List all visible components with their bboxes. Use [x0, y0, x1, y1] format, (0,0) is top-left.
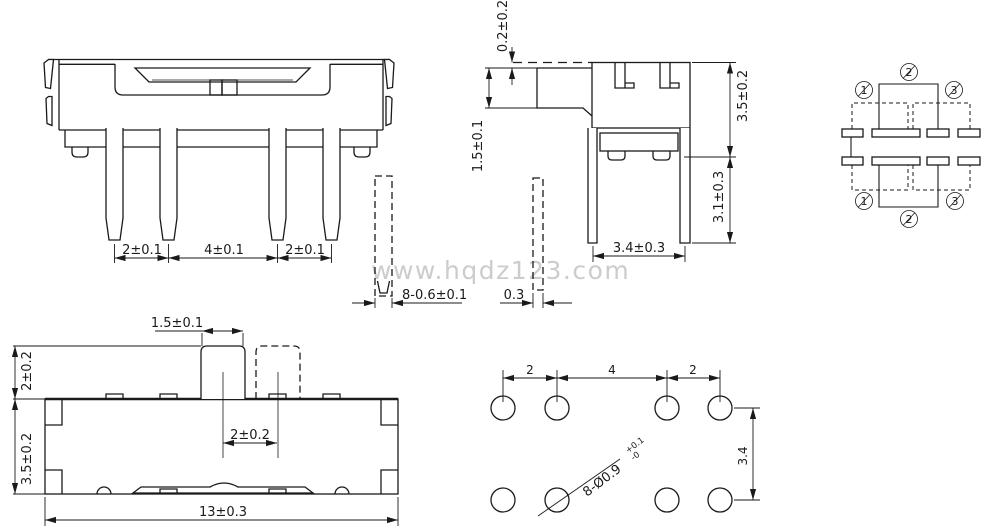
pin-section-width: 8-0.6±0.1: [352, 176, 467, 308]
front-view: 2±0.1 4±0.1 2±0.1: [44, 60, 394, 264]
schematic-terminal: [927, 157, 949, 165]
pin-number-digit: 2: [906, 66, 913, 79]
pcb-hole-spec-group: 8-Ø0.9 +0.1 -0: [577, 435, 653, 500]
pin-number-1-top: 1: [856, 82, 873, 99]
top-dim-knob-protrusion: 2±0.2: [20, 351, 35, 391]
front-dim-pitch-left: 2±0.1: [122, 243, 162, 258]
side-dim-pin-length: 3.1±0.3: [712, 171, 727, 223]
front-corner-flap-top-left: [44, 60, 54, 89]
pin-width-extension-lines: [375, 298, 392, 308]
schematic-terminal: [842, 157, 863, 165]
pcb-hole: [491, 488, 515, 512]
technical-drawing-page: www.hqdz123.com 2±0.1: [0, 0, 991, 529]
schematic-terminal: [872, 157, 920, 165]
pcb-hole: [708, 488, 732, 512]
front-pin-2: [160, 128, 177, 240]
pin-thickness-label: 0.3: [504, 288, 525, 303]
side-dim-body-height: 3.5±0.2: [736, 70, 751, 122]
top-dim-knob-extensions: [155, 331, 243, 346]
side-leg-right: [680, 128, 690, 243]
top-view: 1.5±0.1 2±0.2 3.5±0.2 2±0.2 13±0.3: [13, 316, 398, 526]
pin-section-thickness: 0.3: [500, 178, 572, 308]
pcb-dim-pitch-middle: 4: [608, 363, 616, 377]
pin-number-digit: 1: [861, 195, 868, 208]
pin-number-digit: 3: [952, 195, 959, 208]
top-dim-knob-width: 1.5±0.1: [151, 316, 203, 331]
front-pin-4: [323, 128, 340, 240]
schematic-terminal: [958, 129, 980, 137]
side-dim-knob-extension: [485, 68, 537, 108]
top-dim-body-depth: 3.5±0.2: [20, 433, 35, 485]
schematic-dashed-connections: [852, 103, 970, 190]
side-dim-knob-protrusion: 0.2±0.2: [496, 0, 511, 52]
front-pin-3: [269, 128, 286, 240]
side-body: [592, 63, 690, 129]
top-corner-notches: [45, 399, 398, 494]
schematic-terminal: [842, 129, 863, 137]
pin-thickness-extension-lines: [533, 293, 543, 308]
front-dim-pitch-middle: 4±0.1: [204, 243, 244, 258]
pin-number-3-top: 3: [946, 82, 963, 99]
side-knob: [537, 68, 592, 116]
pcb-dim-pitch-left: 2: [526, 363, 534, 377]
top-body: [45, 399, 398, 494]
circuit-schematic: 2 1 3 1 3 2: [842, 64, 980, 228]
front-corner-flap-top-right: [385, 60, 395, 89]
side-base: [600, 133, 678, 151]
pin-number-1-bottom: 1: [856, 193, 873, 210]
side-base-tab-right: [653, 151, 670, 160]
schematic-terminal: [872, 129, 920, 137]
pin-number-digit: 1: [861, 84, 868, 97]
side-body-slot-right: [660, 63, 679, 89]
front-pin-1: [106, 128, 123, 240]
pcb-dim-pitch-right: 2: [689, 363, 697, 377]
pcb-hole-spec: 8-Ø0.9: [580, 462, 624, 500]
schematic-terminal: [927, 129, 949, 137]
pin-number-digit: 2: [906, 213, 913, 226]
schematic-solid-connections: [851, 84, 938, 207]
front-corner-flap-bottom-left: [46, 97, 52, 126]
side-dim-right-extensions: [684, 63, 736, 244]
schematic-terminal: [958, 157, 980, 165]
side-dim-leg-span: 3.4±0.3: [613, 241, 665, 256]
side-dim-knob-height: 1.5±0.1: [471, 120, 486, 172]
pin-number-2-top: 2: [901, 64, 918, 81]
top-dim-body-length: 13±0.3: [199, 505, 247, 520]
front-corner-flap-bottom-right: [386, 97, 392, 126]
top-dim-left-extensions: [13, 346, 201, 494]
pcb-dim-row-span: 3.4: [736, 446, 750, 465]
pin-width-label: 8-0.6±0.1: [402, 288, 467, 303]
watermark-text: www.hqdz123.com: [371, 256, 630, 285]
front-foot-left: [72, 147, 88, 157]
pin-number-3-bottom: 3: [947, 193, 964, 210]
side-body-slot-left: [615, 63, 634, 89]
side-view: 0.2±0.2 1.5±0.1 3.5±0.2 3.1±0.3 3.4±0.3: [471, 0, 751, 262]
pcb-hole: [655, 488, 679, 512]
drawing-canvas: www.hqdz123.com 2±0.1: [0, 0, 991, 529]
front-foot-right: [354, 147, 370, 157]
pcb-hole-layout: 2 4 2 3.4 8-Ø0.9 +0.1 -0: [491, 363, 760, 516]
front-dim-pitch-right: 2±0.1: [285, 243, 325, 258]
side-base-tab-left: [608, 151, 625, 160]
pin-number-2-bottom: 2: [901, 211, 918, 228]
top-dim-travel: 2±0.2: [230, 428, 270, 443]
side-leg-left: [588, 128, 597, 243]
pin-number-digit: 3: [951, 84, 958, 97]
